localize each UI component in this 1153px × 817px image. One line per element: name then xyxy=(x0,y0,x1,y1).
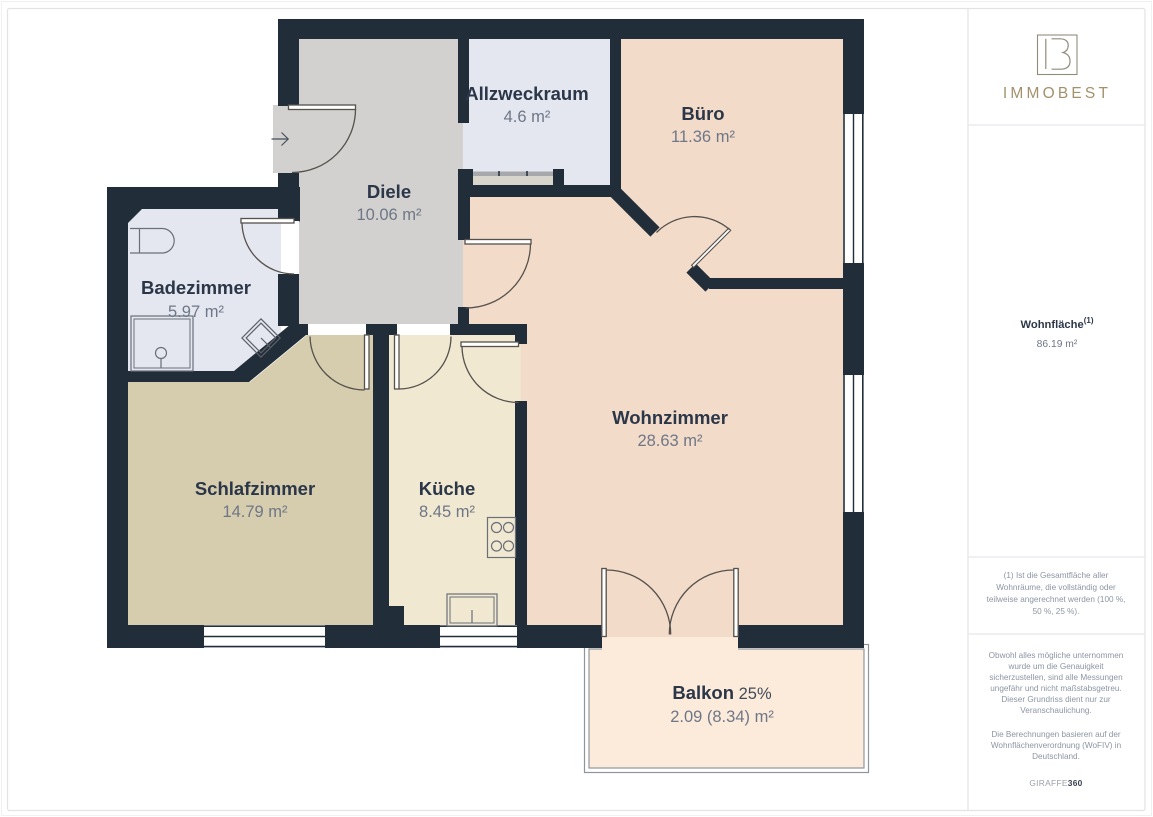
svg-text:Deutschland.: Deutschland. xyxy=(1032,752,1080,761)
svg-text:IMMOBEST: IMMOBEST xyxy=(1003,85,1111,102)
svg-text:2.09 (8.34) m²: 2.09 (8.34) m² xyxy=(670,708,774,726)
svg-text:Die Berechnungen basieren auf: Die Berechnungen basieren auf der xyxy=(991,730,1121,739)
svg-text:Wohnflächenverordnung (WoFIV): Wohnflächenverordnung (WoFIV) in xyxy=(991,741,1122,750)
svg-text:(1) Ist die Gesamtfläche aller: (1) Ist die Gesamtfläche aller xyxy=(1004,571,1109,580)
svg-text:sicherzustellen, sind alle Mes: sicherzustellen, sind alle Messungen xyxy=(989,673,1123,682)
svg-text:8.45 m²: 8.45 m² xyxy=(419,503,475,521)
svg-text:Balkon 25%: Balkon 25% xyxy=(672,682,772,703)
svg-text:ungefähr und nicht maßstabsget: ungefähr und nicht maßstabsgetreu. xyxy=(990,684,1122,693)
svg-text:Badezimmer: Badezimmer xyxy=(141,277,251,298)
svg-text:Wohnräume, die vollständig ode: Wohnräume, die vollständig oder xyxy=(996,583,1116,592)
svg-text:Allzweckraum: Allzweckraum xyxy=(465,83,588,104)
svg-text:Schlafzimmer: Schlafzimmer xyxy=(195,478,315,499)
svg-text:Veranschaulichung.: Veranschaulichung. xyxy=(1020,706,1091,715)
svg-text:Wohnfläche(1): Wohnfläche(1) xyxy=(1021,316,1094,331)
svg-text:Dieser Grundriss dient nur zur: Dieser Grundriss dient nur zur xyxy=(1001,695,1110,704)
svg-text:28.63 m²: 28.63 m² xyxy=(637,432,703,450)
svg-text:4.6 m²: 4.6 m² xyxy=(504,108,551,126)
svg-text:wurde um die Genauigkeit: wurde um die Genauigkeit xyxy=(1007,662,1104,671)
svg-text:Diele: Diele xyxy=(367,181,411,202)
svg-text:teilweise angerechnet werden (: teilweise angerechnet werden (100 %, xyxy=(987,595,1126,604)
svg-text:Obwohl alles mögliche unternom: Obwohl alles mögliche unternommen xyxy=(989,651,1124,660)
svg-text:5.97 m²: 5.97 m² xyxy=(168,303,224,321)
svg-text:Küche: Küche xyxy=(419,478,476,499)
svg-text:86.19 m²: 86.19 m² xyxy=(1037,339,1078,350)
svg-text:GIRAFFE360: GIRAFFE360 xyxy=(1029,778,1082,788)
svg-text:14.79 m²: 14.79 m² xyxy=(222,503,288,521)
svg-text:50 %, 25 %).: 50 %, 25 %). xyxy=(1033,607,1080,616)
svg-text:Büro: Büro xyxy=(681,103,724,124)
svg-text:11.36 m²: 11.36 m² xyxy=(671,128,735,146)
svg-text:10.06 m²: 10.06 m² xyxy=(356,206,422,224)
svg-text:Wohnzimmer: Wohnzimmer xyxy=(612,407,728,428)
